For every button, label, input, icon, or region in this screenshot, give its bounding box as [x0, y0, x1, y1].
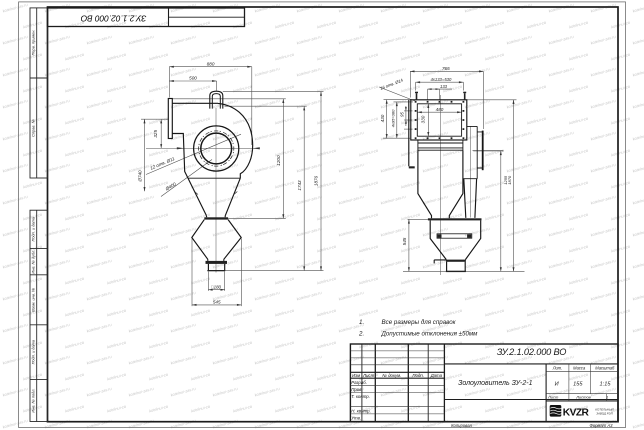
svg-text:1200: 1200 — [276, 155, 281, 166]
svg-text:95: 95 — [400, 112, 405, 117]
svg-text:325: 325 — [153, 130, 158, 138]
svg-text:Допустимые отклонения ±50мм: Допустимые отклонения ±50мм — [381, 331, 479, 338]
svg-text:□180: □180 — [211, 284, 222, 289]
svg-text:Инв. № дубл.: Инв. № дубл. — [31, 250, 36, 274]
svg-text:880: 880 — [207, 61, 215, 66]
svg-text:Подп. и дата: Подп. и дата — [31, 216, 36, 241]
svg-text:ЗАВОД РЭП: ЗАВОД РЭП — [596, 411, 613, 415]
svg-text:4х95=380: 4х95=380 — [390, 109, 395, 127]
svg-text:765: 765 — [442, 66, 450, 71]
svg-text:1.: 1. — [359, 319, 364, 326]
svg-text:Все размеры для справок: Все размеры для справок — [382, 319, 457, 326]
svg-text:Подп. и дата: Подп. и дата — [31, 339, 36, 364]
svg-text:1: 1 — [606, 395, 608, 400]
svg-text:Лит.: Лит. — [552, 366, 563, 371]
svg-text:1870: 1870 — [507, 175, 512, 185]
svg-text:1:15: 1:15 — [600, 382, 612, 388]
svg-text:KVZR: KVZR — [563, 407, 590, 418]
svg-text:ЗУ.2.1.02.000 ВО: ЗУ.2.1.02.000 ВО — [80, 13, 146, 23]
svg-text:545: 545 — [402, 237, 407, 245]
svg-text:№ докум.: № докум. — [382, 373, 401, 378]
svg-text:133: 133 — [440, 84, 448, 89]
svg-text:500: 500 — [189, 76, 197, 81]
svg-text:155: 155 — [573, 382, 583, 388]
svg-text:Дата: Дата — [430, 373, 443, 378]
svg-text:430: 430 — [380, 114, 385, 122]
svg-text:Масса: Масса — [573, 366, 586, 371]
svg-text:330: 330 — [420, 115, 425, 123]
svg-text:Формат A3: Формат A3 — [590, 423, 614, 428]
svg-text:Ø740: Ø740 — [138, 170, 143, 183]
svg-text:Н. контр.: Н. контр. — [351, 408, 371, 413]
svg-text:Масштаб: Масштаб — [595, 366, 615, 371]
svg-text:Перв. примен.: Перв. примен. — [31, 30, 36, 56]
svg-text:2.: 2. — [358, 331, 364, 338]
svg-text:Копировал: Копировал — [451, 423, 472, 428]
svg-text:Золоуловитель ЗУ-2-1: Золоуловитель ЗУ-2-1 — [458, 380, 533, 387]
svg-text:И: И — [555, 382, 559, 388]
svg-text:ЗУ.2.1.02.000 ВО: ЗУ.2.1.02.000 ВО — [497, 347, 567, 357]
svg-text:Разраб.: Разраб. — [351, 380, 367, 385]
svg-text:Лист: Лист — [362, 373, 375, 378]
svg-text:Изм: Изм — [352, 373, 360, 378]
svg-text:Пров.: Пров. — [351, 387, 362, 392]
svg-text:Т. контр.: Т. контр. — [351, 394, 370, 399]
svg-text:4х133=530: 4х133=530 — [430, 77, 452, 82]
svg-text:Инв. № подл.: Инв. № подл. — [31, 388, 36, 412]
svg-text:Справ. №: Справ. № — [31, 118, 36, 136]
svg-text:Лист: Лист — [547, 395, 559, 400]
svg-text:Утв.: Утв. — [351, 415, 361, 420]
svg-text:545: 545 — [213, 300, 221, 305]
svg-text:1876: 1876 — [314, 175, 319, 186]
svg-text:Взам. инв. №: Взам. инв. № — [31, 287, 36, 312]
svg-text:Листов: Листов — [575, 395, 591, 400]
svg-text:1743: 1743 — [297, 180, 302, 191]
svg-text:480: 480 — [436, 107, 444, 112]
svg-text:Подп.: Подп. — [412, 373, 424, 378]
